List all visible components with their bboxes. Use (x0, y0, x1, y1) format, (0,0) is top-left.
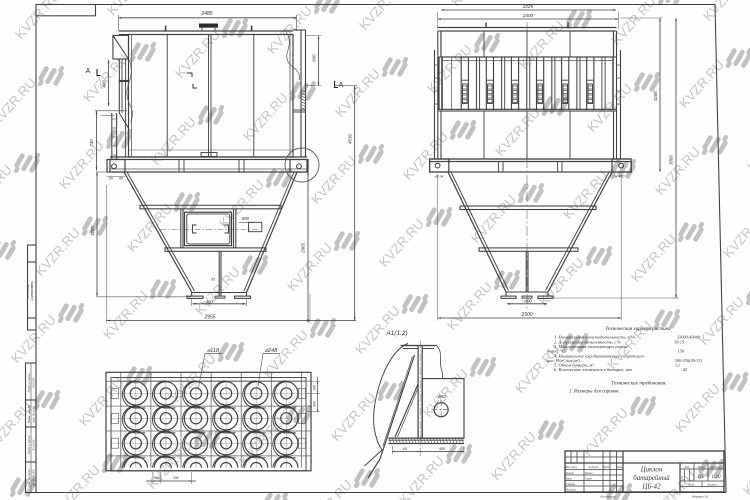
svg-text:4180: 4180 (653, 90, 658, 101)
svg-text:KVZR.RU: KVZR.RU (0, 75, 39, 129)
svg-text:6. Количество элементов в б: 6. Количество элементов в батареи, шт (554, 367, 633, 373)
svg-text:KVZR.RU: KVZR.RU (12, 0, 63, 42)
svg-text:Изм.: Изм. (564, 466, 570, 469)
svg-text:2225: 2225 (522, 4, 534, 9)
svg-text:A1(1:2): A1(1:2) (385, 330, 407, 337)
svg-text:600: 600 (312, 54, 317, 62)
svg-text:2965: 2965 (301, 242, 306, 254)
svg-text:KVZR.RU: KVZR.RU (284, 240, 335, 294)
svg-text:42: 42 (683, 367, 688, 372)
svg-text:2485: 2485 (200, 11, 212, 17)
svg-text:KVZR.RU: KVZR.RU (672, 381, 723, 435)
svg-text:4030: 4030 (348, 133, 353, 144)
svg-text:65: 65 (403, 447, 408, 451)
svg-text:KVZR.RU: KVZR.RU (32, 225, 83, 279)
svg-text:Подп.: Подп. (602, 466, 610, 469)
svg-text:400: 400 (102, 80, 107, 88)
svg-text:Технические требования.: Технические требования. (611, 380, 666, 387)
svg-text:Циклон: Циклон (640, 467, 663, 474)
svg-text:KVZR.RU: KVZR.RU (56, 138, 107, 192)
svg-text:740: 740 (89, 139, 94, 147)
svg-text:⌀248: ⌀248 (265, 348, 278, 354)
svg-text:2400: 2400 (522, 13, 534, 18)
svg-text:3080: 3080 (669, 154, 674, 165)
svg-text:Подп. и дата: Подп. и дата (27, 373, 31, 392)
svg-text:800: 800 (242, 216, 250, 221)
svg-text:KVZR.RU: KVZR.RU (304, 477, 355, 500)
svg-text:KVZR.RU: KVZR.RU (720, 207, 750, 261)
svg-text:батарейный: батарейный (633, 475, 670, 482)
svg-text:Листов 1: Листов 1 (706, 484, 719, 487)
svg-text:Лист: Лист (570, 466, 577, 469)
svg-text:Согласовано: Согласовано (30, 281, 34, 301)
svg-text:1. Размеры для справок.: 1. Размеры для справок. (569, 390, 620, 395)
svg-text:Цб-42.00.000: Цб-42.00.000 (32, 469, 36, 486)
svg-text:Разраб.: Разраб. (565, 472, 575, 475)
svg-text:Серов: Серов (585, 478, 592, 481)
svg-text:Волков: Волков (585, 472, 593, 475)
svg-text:KVZR.RU: KVZR.RU (628, 231, 679, 285)
svg-text:KVZR.RU: KVZR.RU (676, 57, 727, 111)
svg-text:Инв. № подл.: Инв. № подл. (27, 469, 31, 488)
svg-text:1760: 1760 (90, 225, 95, 236)
svg-text:KVZR.RU: KVZR.RU (516, 18, 567, 72)
svg-text:⌀50: ⌀50 (438, 394, 446, 399)
svg-text:2955: 2955 (203, 315, 215, 321)
svg-text:21.03.85: 21.03.85 (32, 439, 36, 451)
svg-text:90: 90 (109, 177, 113, 181)
svg-text:KVZR.RU: KVZR.RU (240, 90, 291, 144)
svg-text:KVZR.RU: KVZR.RU (488, 429, 539, 483)
svg-text:Т.контр.: Т.контр. (566, 483, 576, 486)
svg-text:Б.И.245-82: Б.И.245-82 (26, 284, 30, 299)
svg-text:118: 118 (697, 475, 705, 480)
svg-text:Пров.: Пров. (565, 478, 573, 481)
svg-text:KVZR.RU: KVZR.RU (608, 0, 659, 48)
svg-text:KVZR.RU: KVZR.RU (328, 390, 379, 444)
svg-text:KVZR.RU: KVZR.RU (216, 177, 267, 231)
svg-text:Лист: Лист (687, 484, 695, 487)
svg-text:лк 480: лк 480 (613, 175, 625, 179)
svg-text:Техническая характеристика: Техническая характеристика (605, 326, 671, 332)
svg-text:10-15: 10-15 (674, 340, 685, 345)
svg-text:90: 90 (119, 177, 123, 181)
svg-text:14.02.85: 14.02.85 (32, 377, 36, 388)
svg-text:KVZR.RU: KVZR.RU (492, 105, 543, 159)
svg-text:KVZR.RU: KVZR.RU (468, 192, 519, 246)
svg-text:KVZR.RU: KVZR.RU (420, 366, 471, 420)
svg-text:KVZR.RU: KVZR.RU (192, 264, 243, 318)
svg-text:□490: □490 (522, 298, 532, 303)
svg-text:KVZR.RU: KVZR.RU (52, 462, 103, 500)
svg-text:400: 400 (439, 447, 446, 451)
svg-text:KVZR.RU: KVZR.RU (104, 0, 155, 18)
svg-text:KVZR.RU: KVZR.RU (536, 255, 587, 309)
svg-text:KVZR.RU: KVZR.RU (76, 375, 127, 429)
svg-text:KVZR.RU: KVZR.RU (740, 444, 750, 498)
svg-text:KVZR.RU: KVZR.RU (100, 288, 151, 342)
svg-text:Копировал: Копировал (599, 495, 616, 499)
svg-text:Масса: Масса (697, 466, 706, 469)
svg-text:Формат А1: Формат А1 (692, 495, 709, 499)
svg-text:□490: □490 (203, 300, 213, 305)
svg-text:100: 100 (154, 476, 160, 480)
svg-text:KVZR.RU: KVZR.RU (560, 168, 611, 222)
svg-text:3,1: 3,1 (675, 363, 680, 369)
svg-text:KVZR.RU: KVZR.RU (444, 279, 495, 333)
svg-text:KVZR.RU: KVZR.RU (0, 162, 15, 216)
svg-text:A: A (86, 68, 91, 75)
svg-text:⌀8 лк: ⌀8 лк (435, 175, 444, 179)
svg-text:д5: д5 (211, 278, 215, 282)
svg-text:300: 300 (313, 401, 317, 407)
svg-text:150: 150 (678, 349, 685, 354)
svg-text:KVZR.RU: KVZR.RU (744, 120, 750, 174)
svg-text:у: у (680, 474, 683, 479)
svg-text:Инв. № дубл.: Инв. № дубл. (32, 405, 36, 422)
svg-text:KVZR.RU: KVZR.RU (700, 0, 750, 24)
svg-text:Лит.: Лит. (683, 466, 690, 469)
svg-text:242: 242 (313, 385, 317, 392)
svg-text:KVZR.RU: KVZR.RU (144, 438, 195, 492)
svg-text:KVZR.RU: KVZR.RU (8, 312, 59, 366)
svg-text:Взам. инв.№: Взам. инв.№ (27, 404, 31, 422)
svg-text:KVZR.RU: KVZR.RU (376, 216, 427, 270)
svg-text:Подп. и дата: Подп. и дата (27, 435, 31, 454)
svg-text:KVZR.RU: KVZR.RU (308, 153, 359, 207)
svg-text:ЦБ-42: ЦБ-42 (642, 484, 662, 491)
svg-text:⌀118: ⌀118 (207, 348, 220, 354)
svg-text:2500: 2500 (520, 312, 532, 318)
svg-text:Н.контр.: Н.контр. (565, 489, 576, 492)
svg-text:Масштаб: Масштаб (709, 466, 722, 469)
svg-text:KVZR.RU: KVZR.RU (332, 66, 383, 120)
svg-text:№ докум.: № докум. (587, 466, 599, 469)
svg-text:390: 390 (173, 476, 179, 480)
svg-text:1:10: 1:10 (711, 475, 721, 480)
svg-text:3. Максимальная температура: 3. Максимальная температура газа не (554, 344, 628, 349)
